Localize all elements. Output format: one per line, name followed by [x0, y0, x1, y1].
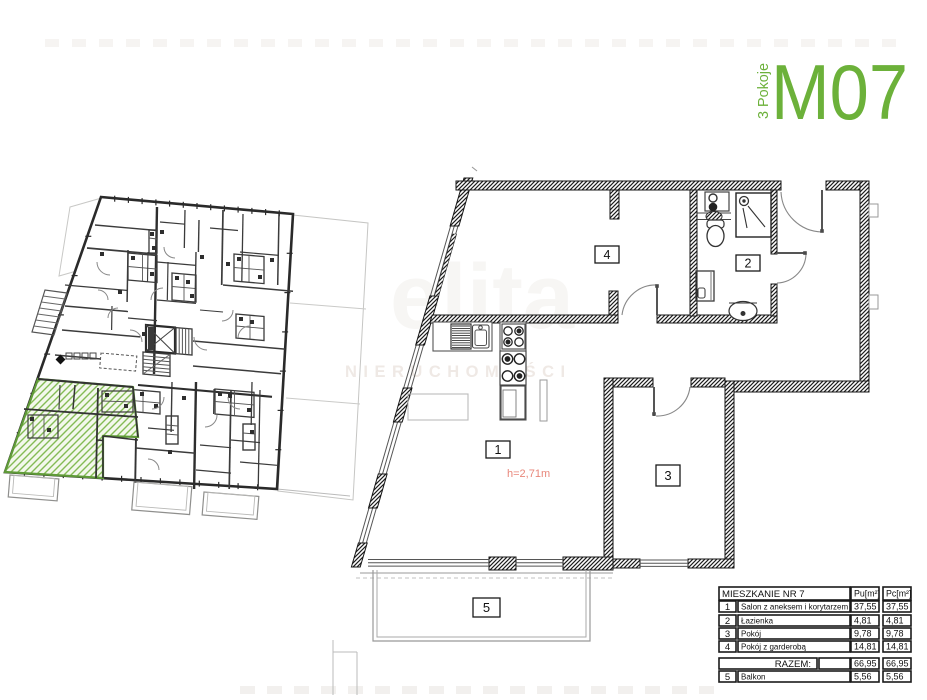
svg-text:37,55: 37,55	[854, 602, 877, 612]
svg-text:1: 1	[495, 443, 502, 457]
svg-text:4: 4	[725, 642, 730, 653]
svg-text:3 Pokoje: 3 Pokoje	[755, 63, 772, 119]
svg-text:5: 5	[725, 672, 730, 683]
svg-text:1: 1	[725, 602, 730, 613]
svg-text:5,56: 5,56	[854, 672, 872, 682]
svg-text:4: 4	[604, 248, 611, 262]
svg-text:Pu[m²]: Pu[m²]	[854, 589, 880, 599]
svg-text:37,55: 37,55	[886, 602, 909, 612]
svg-text:3: 3	[664, 468, 671, 483]
svg-text:2: 2	[725, 616, 730, 627]
svg-text:4,81: 4,81	[886, 616, 904, 626]
svg-text:RAZEM:: RAZEM:	[775, 659, 811, 670]
svg-text:9,78: 9,78	[854, 629, 872, 639]
svg-text:5: 5	[483, 600, 490, 615]
svg-text:NIERUCHOMOŚCI: NIERUCHOMOŚCI	[345, 362, 572, 381]
svg-text:Pokój z garderobą: Pokój z garderobą	[741, 642, 806, 651]
svg-text:14,81: 14,81	[886, 642, 909, 652]
svg-text:2: 2	[745, 257, 752, 271]
svg-text:Balkon: Balkon	[741, 672, 765, 681]
svg-text:4,81: 4,81	[854, 616, 872, 626]
svg-text:Salon z aneksem i korytarzem: Salon z aneksem i korytarzem	[741, 602, 848, 611]
svg-text:66,95: 66,95	[854, 659, 877, 669]
svg-text:h=2,71m: h=2,71m	[507, 468, 550, 480]
svg-text:Pokój: Pokój	[741, 629, 761, 638]
svg-text:Łazienka: Łazienka	[741, 616, 774, 625]
svg-text:Pc[m²]: Pc[m²]	[886, 589, 911, 599]
svg-text:MIESZKANIE NR 7: MIESZKANIE NR 7	[722, 589, 805, 600]
svg-text:M07: M07	[771, 48, 908, 136]
svg-text:14,81: 14,81	[854, 642, 877, 652]
svg-text:9,78: 9,78	[886, 629, 904, 639]
svg-text:5,56: 5,56	[886, 672, 904, 682]
svg-text:3: 3	[725, 629, 730, 640]
svg-text:66,95: 66,95	[886, 659, 909, 669]
